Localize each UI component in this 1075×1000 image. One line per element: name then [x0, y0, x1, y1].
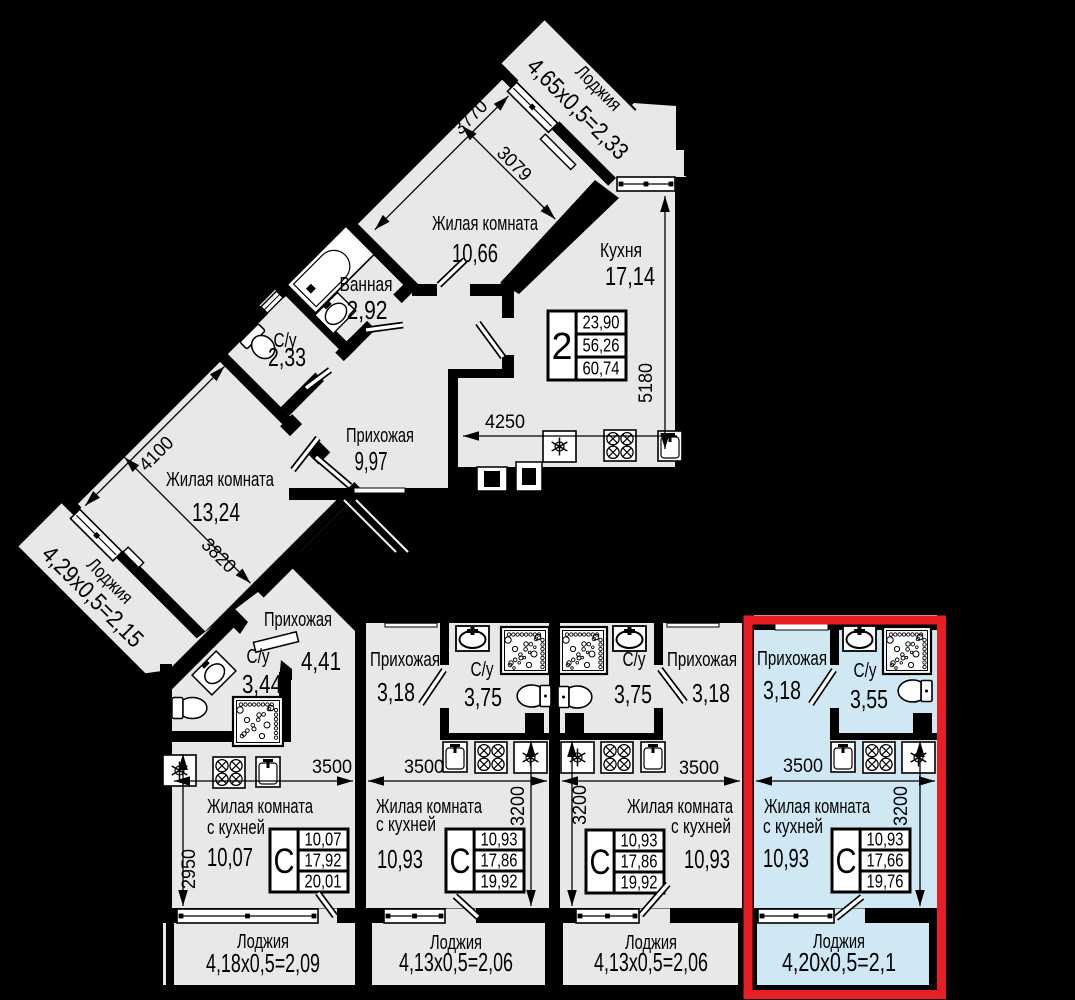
- svg-text:С: С: [836, 842, 857, 881]
- svg-text:13,24: 13,24: [192, 497, 240, 527]
- svg-text:3200: 3200: [570, 785, 591, 825]
- svg-text:4,20х0,5=2,1: 4,20х0,5=2,1: [782, 947, 896, 977]
- svg-text:3,44: 3,44: [242, 669, 282, 699]
- svg-text:10,07: 10,07: [207, 842, 253, 872]
- svg-text:19,92: 19,92: [481, 871, 518, 892]
- svg-text:3200: 3200: [508, 786, 529, 826]
- svg-text:С: С: [274, 842, 295, 881]
- svg-text:С/у: С/у: [471, 658, 495, 681]
- svg-text:9,97: 9,97: [355, 446, 388, 476]
- svg-text:Жилая комната: Жилая комната: [432, 212, 538, 235]
- svg-text:3,75: 3,75: [614, 679, 652, 709]
- svg-text:4,18х0,5=2,09: 4,18х0,5=2,09: [206, 948, 320, 978]
- svg-text:20,01: 20,01: [305, 871, 342, 892]
- svg-text:10,93: 10,93: [763, 843, 809, 873]
- svg-text:10,93: 10,93: [684, 844, 730, 874]
- svg-text:3500: 3500: [783, 756, 823, 777]
- svg-text:10,93: 10,93: [621, 830, 658, 851]
- svg-text:С/у: С/у: [623, 648, 647, 671]
- svg-text:19,76: 19,76: [867, 871, 904, 892]
- svg-text:17,66: 17,66: [867, 850, 904, 871]
- svg-text:17,92: 17,92: [305, 850, 342, 871]
- svg-text:3500: 3500: [312, 757, 352, 778]
- svg-text:3,55: 3,55: [850, 684, 888, 714]
- svg-text:10,07: 10,07: [305, 829, 342, 850]
- svg-text:Прихожая: Прихожая: [370, 648, 440, 671]
- svg-text:5180: 5180: [636, 363, 657, 403]
- svg-text:4,13х0,5=2,06: 4,13х0,5=2,06: [594, 947, 708, 977]
- svg-text:17,86: 17,86: [481, 850, 518, 871]
- svg-text:4,41: 4,41: [301, 646, 341, 676]
- svg-text:Прихожая: Прихожая: [346, 424, 414, 447]
- svg-text:Жилая комната: Жилая комната: [166, 468, 274, 491]
- svg-text:2950: 2950: [179, 849, 200, 889]
- svg-text:2,33: 2,33: [268, 342, 306, 372]
- svg-text:19,92: 19,92: [621, 872, 658, 893]
- svg-text:С: С: [590, 843, 611, 882]
- svg-text:С/у: С/у: [247, 645, 271, 668]
- svg-text:10,93: 10,93: [481, 829, 518, 850]
- svg-text:Прихожая: Прихожая: [667, 648, 737, 671]
- svg-text:Прихожая: Прихожая: [757, 647, 827, 670]
- svg-text:3500: 3500: [679, 758, 719, 779]
- svg-text:4,13х0,5=2,06: 4,13х0,5=2,06: [399, 947, 513, 977]
- svg-text:17,14: 17,14: [605, 261, 655, 291]
- svg-text:с кухней: с кухней: [207, 816, 265, 839]
- svg-text:Прихожая: Прихожая: [264, 608, 332, 631]
- svg-text:4250: 4250: [485, 412, 525, 433]
- svg-text:Кухня: Кухня: [600, 239, 642, 262]
- svg-text:10,93: 10,93: [377, 844, 423, 874]
- svg-text:3,18: 3,18: [692, 678, 730, 708]
- svg-text:10,93: 10,93: [867, 829, 904, 850]
- svg-text:с кухней: с кухней: [763, 815, 823, 838]
- svg-text:2,92: 2,92: [347, 295, 388, 325]
- svg-text:С: С: [450, 842, 471, 881]
- svg-text:10,66: 10,66: [452, 238, 498, 268]
- svg-text:3,18: 3,18: [763, 675, 801, 705]
- svg-text:3500: 3500: [404, 757, 444, 778]
- svg-text:Ванная: Ванная: [340, 273, 393, 296]
- svg-text:56,26: 56,26: [583, 335, 620, 356]
- svg-text:2: 2: [552, 326, 573, 368]
- svg-text:23,90: 23,90: [583, 312, 620, 333]
- svg-text:Жилая комната: Жилая комната: [207, 795, 313, 818]
- svg-text:3,18: 3,18: [377, 677, 415, 707]
- svg-text:60,74: 60,74: [583, 358, 620, 379]
- svg-text:3,75: 3,75: [464, 682, 502, 712]
- svg-text:17,86: 17,86: [621, 851, 658, 872]
- svg-text:3200: 3200: [891, 786, 912, 826]
- svg-text:С/у: С/у: [854, 659, 878, 682]
- svg-text:с кухней: с кухней: [671, 815, 731, 838]
- svg-text:с кухней: с кухней: [376, 813, 436, 836]
